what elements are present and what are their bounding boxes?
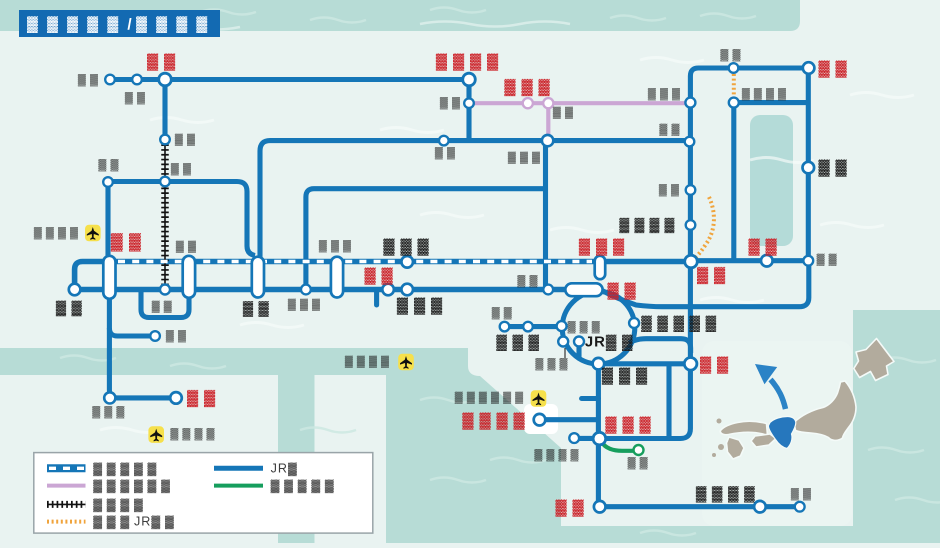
svg-text:▓▓: ▓▓ — [700, 356, 734, 374]
svg-text:▓▓: ▓▓ — [818, 60, 852, 78]
svg-text:▓▓▓▓▓: ▓▓▓▓▓ — [641, 316, 721, 333]
svg-text:▓▓▓: ▓▓▓ — [508, 152, 544, 165]
svg-text:▓▓▓▓▓▓: ▓▓▓▓▓▓ — [455, 392, 527, 405]
svg-text:▓▓▓▓▓: ▓▓▓▓▓ — [93, 461, 161, 476]
svg-text:▓▓: ▓▓ — [659, 123, 683, 136]
svg-text:▓▓: ▓▓ — [364, 267, 398, 285]
svg-text:▓▓: ▓▓ — [243, 300, 274, 318]
svg-text:▓▓▓▓: ▓▓▓▓ — [93, 497, 147, 512]
svg-text:▓▓▓▓▓▓: ▓▓▓▓▓▓ — [93, 479, 175, 494]
svg-text:▓▓: ▓▓ — [111, 233, 147, 252]
svg-text:▓▓▓▓: ▓▓▓▓ — [170, 428, 218, 441]
svg-text:▓▓: ▓▓ — [492, 307, 516, 320]
svg-text:▓▓▓: ▓▓▓ — [602, 367, 653, 385]
svg-text:▓▓▓▓: ▓▓▓▓ — [436, 53, 504, 71]
svg-text:▓▓▓: ▓▓▓ — [579, 238, 630, 256]
svg-text:JR▓: JR▓ — [271, 461, 302, 476]
svg-text:▓▓▓: ▓▓▓ — [605, 416, 656, 434]
svg-text:▓▓: ▓▓ — [147, 53, 181, 71]
svg-text:▓▓▓: ▓▓▓ — [288, 299, 324, 312]
svg-text:▓▓: ▓▓ — [166, 330, 190, 343]
svg-text:▓▓▓: ▓▓▓ — [92, 406, 128, 419]
svg-text:▓▓: ▓▓ — [791, 488, 815, 501]
svg-text:▓▓▓▓: ▓▓▓▓ — [34, 227, 82, 240]
svg-text:▓▓▓JR▓▓: ▓▓▓JR▓▓ — [93, 515, 178, 530]
svg-text:▓▓▓: ▓▓▓ — [397, 297, 448, 315]
svg-text:▓▓: ▓▓ — [517, 275, 541, 288]
svg-text:JR▓▓: JR▓▓ — [585, 335, 638, 352]
svg-text:▓▓: ▓▓ — [817, 253, 841, 266]
svg-text:▓▓: ▓▓ — [628, 457, 652, 470]
svg-text:▓▓: ▓▓ — [152, 301, 176, 314]
svg-text:▓▓: ▓▓ — [125, 92, 149, 105]
svg-text:▓▓: ▓▓ — [720, 49, 744, 62]
svg-text:▓▓▓▓: ▓▓▓▓ — [696, 486, 760, 503]
svg-text:▓▓: ▓▓ — [818, 159, 852, 177]
svg-text:▓▓: ▓▓ — [607, 282, 641, 300]
svg-text:▓▓▓▓: ▓▓▓▓ — [534, 449, 582, 462]
svg-text:▓▓▓: ▓▓▓ — [648, 88, 684, 101]
svg-text:▓▓: ▓▓ — [435, 147, 459, 160]
svg-text:▓▓: ▓▓ — [440, 97, 464, 110]
svg-text:▓▓: ▓▓ — [555, 499, 589, 517]
svg-text:▓▓: ▓▓ — [78, 74, 102, 87]
svg-text:▓▓: ▓▓ — [175, 134, 199, 147]
svg-text:▓▓▓▓▓/▓▓▓▓: ▓▓▓▓▓/▓▓▓▓ — [27, 16, 213, 34]
svg-text:▓▓▓: ▓▓▓ — [383, 238, 434, 256]
svg-text:▓▓▓: ▓▓▓ — [535, 358, 571, 371]
svg-text:▓▓▓▓: ▓▓▓▓ — [345, 356, 393, 369]
svg-text:▓▓: ▓▓ — [748, 238, 782, 256]
svg-text:▓▓▓▓▓: ▓▓▓▓▓ — [271, 479, 339, 494]
svg-text:▓▓: ▓▓ — [659, 184, 683, 197]
svg-text:▓▓▓: ▓▓▓ — [568, 321, 604, 334]
svg-text:▓▓: ▓▓ — [176, 241, 200, 254]
svg-text:▓▓▓: ▓▓▓ — [504, 78, 555, 96]
svg-text:▓▓: ▓▓ — [187, 389, 221, 407]
svg-text:▓▓: ▓▓ — [56, 299, 87, 317]
svg-text:▓▓▓▓: ▓▓▓▓ — [462, 412, 530, 430]
svg-text:▓▓: ▓▓ — [98, 159, 122, 172]
svg-text:▓▓: ▓▓ — [171, 163, 195, 176]
svg-text:▓▓▓: ▓▓▓ — [319, 240, 355, 253]
svg-text:▓▓▓▓: ▓▓▓▓ — [619, 217, 679, 233]
svg-text:▓▓: ▓▓ — [553, 107, 577, 120]
svg-text:▓▓▓▓: ▓▓▓▓ — [742, 88, 790, 101]
svg-text:▓▓▓: ▓▓▓ — [496, 335, 544, 352]
svg-text:▓▓: ▓▓ — [697, 266, 731, 284]
